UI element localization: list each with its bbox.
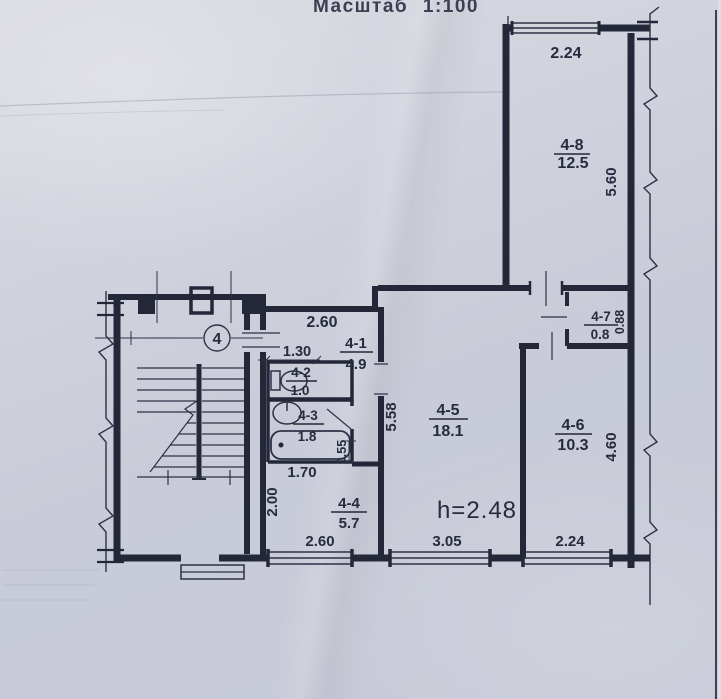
window-room-4-4 xyxy=(268,549,352,567)
room-4-3-area: 1.8 xyxy=(298,429,317,444)
page-edge xyxy=(716,0,721,699)
dim-room-4-1-width: 2.60 xyxy=(306,314,337,331)
dim-wall-jog: 0.55 xyxy=(335,440,349,464)
dim-window-4-5: 3.05 xyxy=(432,533,461,550)
window-room-4-5 xyxy=(390,549,490,567)
room-4-8-number: 4-8 xyxy=(560,137,583,154)
room-4-4-area: 5.7 xyxy=(339,515,360,532)
floor-plan-scan: 4 Масштаб 1:100 2.24 4-8 12.5 5.60 4-7 0… xyxy=(0,0,721,699)
dim-window-4-4: 2.60 xyxy=(305,533,334,550)
room-4-7-number: 4-7 xyxy=(591,309,611,324)
ceiling-height-note: h=2.48 xyxy=(437,497,517,524)
unit-number-circle: 4 xyxy=(204,325,230,351)
window-room-4-8 xyxy=(512,21,599,35)
floor-plan-drawing: 4 Масштаб 1:100 2.24 4-8 12.5 5.60 4-7 0… xyxy=(0,0,721,699)
dim-wc-width: 1.30 xyxy=(283,344,311,360)
room-4-3-number: 4-3 xyxy=(298,408,318,423)
room-4-1-area: 4.9 xyxy=(346,356,367,373)
entrance-porch xyxy=(181,565,244,579)
room-4-6-number: 4-6 xyxy=(561,417,584,434)
interior-walls-north xyxy=(263,271,634,309)
dim-window-4-8: 2.24 xyxy=(550,45,581,62)
dim-window-4-6: 2.24 xyxy=(555,533,585,550)
paper-crease-lines xyxy=(0,92,503,600)
room-4-2-number: 4-2 xyxy=(291,365,311,380)
dim-corridor-depth: 2.00 xyxy=(264,487,281,516)
adjacent-building-break-line xyxy=(637,7,659,605)
dim-closet-4-7-depth: 0.88 xyxy=(613,310,627,334)
room-4-5-area: 18.1 xyxy=(432,423,463,440)
unit-number: 4 xyxy=(213,331,222,348)
room-4-4-number: 4-4 xyxy=(338,495,360,512)
room-4-8-area: 12.5 xyxy=(557,155,588,172)
room-4-5-number: 4-5 xyxy=(436,402,459,419)
window-room-4-6 xyxy=(523,549,611,567)
dim-room-4-5-depth: 5.58 xyxy=(383,402,400,431)
dim-room-4-6-depth: 4.60 xyxy=(603,432,620,461)
room-4-6-walls xyxy=(519,332,552,558)
room-4-7-area: 0.8 xyxy=(591,327,610,342)
room-4-6-area: 10.3 xyxy=(557,437,588,454)
dim-corridor-width: 1.70 xyxy=(287,464,316,481)
room-4-1-number: 4-1 xyxy=(345,335,367,352)
stairwell-walls xyxy=(108,288,280,561)
dim-room-4-8-depth: 5.60 xyxy=(603,167,620,196)
stairs xyxy=(137,364,244,485)
room-4-2-area: 1.0 xyxy=(291,383,310,398)
sink-symbol xyxy=(273,400,301,424)
scale-label: Масштаб 1:100 xyxy=(313,0,479,17)
